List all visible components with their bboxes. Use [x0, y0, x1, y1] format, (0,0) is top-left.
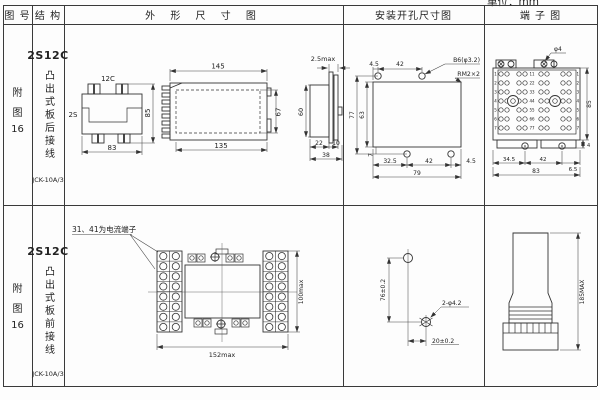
note-leaders — [72, 235, 158, 270]
svg-text:55: 55 — [529, 108, 535, 113]
dim-185max: 185MAX — [579, 280, 586, 305]
terminal-hole-label: φ4 — [554, 46, 562, 53]
svg-text:1: 1 — [494, 72, 497, 77]
silhouette-dims — [550, 233, 581, 350]
dim-135: 135 — [214, 142, 227, 150]
header-terminal: 端 子 图 — [484, 6, 597, 23]
row1-outline-drawing: 12C 2S 83 85 145 135 67 — [64, 24, 343, 205]
header-mounting: 安装开孔尺寸图 — [343, 6, 484, 23]
holes-spec-label: 2-φ4.2 — [442, 300, 462, 307]
row2-structure-type: 凸出式板前接线 — [32, 266, 64, 366]
svg-text:6: 6 — [577, 117, 580, 122]
header-structure: 结 构 — [32, 6, 64, 23]
row1-structure-type: 凸出式板后接线 — [32, 70, 64, 170]
row2-outline-drawing: 31、41为电流端子 — [64, 205, 343, 386]
dim-34-5: 34.5 — [503, 157, 516, 163]
dim-4-terminal: 4 — [587, 143, 590, 149]
structure-type-text: 凸出式板前接线 — [41, 266, 56, 366]
svg-text:33: 33 — [529, 90, 535, 95]
dim-145: 145 — [211, 63, 224, 71]
grid-line — [3, 386, 597, 387]
dim-20: 20±0.2 — [432, 338, 454, 345]
dim-4-5-top: 4.5 — [369, 61, 379, 68]
dim-85: 85 — [144, 109, 152, 118]
dim-76: 76±0.2 — [380, 279, 387, 301]
dim-85-terminal: 85 — [586, 100, 593, 108]
dim-83: 83 — [108, 144, 117, 152]
thread-spec-label: RM2×2 — [457, 71, 480, 78]
figure-line: 图 — [13, 104, 23, 119]
row1-model: 2S12C — [32, 49, 64, 62]
relay-silhouette — [503, 233, 558, 350]
top-view-dims — [82, 84, 155, 155]
figure-line: 附 — [13, 280, 23, 295]
svg-text:5: 5 — [577, 108, 580, 113]
center-body — [185, 249, 260, 334]
figure-line: 附 — [13, 84, 23, 99]
dim-42-top: 42 — [396, 61, 404, 68]
row2-figure-number: 附 图 16 — [3, 280, 32, 331]
dim-83-terminal: 83 — [532, 168, 540, 175]
svg-text:6: 6 — [494, 117, 497, 122]
catalog-page: 单位：mm 图 号 结 构 外 形 尺 寸 图 安装开孔尺寸图 端 子 图 附 … — [0, 0, 600, 400]
terminal-dot — [524, 145, 526, 147]
row2-product-code: JCK-10A/3 — [32, 370, 64, 378]
row1-mounting-drawing: 4.5 42 B6(φ3.2) RM2×2 77 63 7 32.5 42 4.… — [343, 24, 484, 205]
structure-type-text: 凸出式板后接线 — [41, 70, 56, 170]
dim-4-5-bottom: 4.5 — [466, 158, 476, 165]
svg-text:4: 4 — [577, 99, 580, 104]
svg-text:44: 44 — [529, 99, 535, 104]
top-view — [82, 84, 142, 143]
terminal-grid: 1111222233334444555566667777 — [494, 72, 579, 131]
dim-38: 38 — [322, 152, 330, 159]
dim-22: 22 — [315, 140, 323, 147]
dim-7: 7 — [368, 153, 375, 157]
dim-60: 60 — [297, 108, 305, 116]
terminal-dot — [561, 145, 563, 147]
svg-text:66: 66 — [529, 117, 535, 122]
svg-text:1: 1 — [577, 72, 580, 77]
row2-model: 2S12C — [32, 245, 64, 258]
svg-text:5: 5 — [494, 108, 497, 113]
header-outline: 外 形 尺 寸 图 — [64, 6, 343, 23]
dim-42-bottom: 42 — [425, 158, 433, 165]
figure-line: 16 — [11, 320, 24, 331]
dim-12c: 12C — [101, 75, 115, 83]
figure-line: 图 — [13, 300, 23, 315]
dim-79: 79 — [413, 170, 421, 177]
row1-product-code: JCK-10A/3 — [32, 176, 64, 184]
svg-text:3: 3 — [494, 90, 497, 95]
figure-line: 16 — [11, 124, 24, 135]
svg-text:7: 7 — [577, 126, 580, 131]
svg-text:7: 7 — [494, 126, 497, 131]
dim-42-terminal: 42 — [540, 157, 547, 163]
side-view — [162, 83, 271, 140]
dim-6-5: 6.5 — [569, 167, 578, 173]
grid-line — [597, 5, 598, 386]
current-terminal-note: 31、41为电流端子 — [72, 224, 137, 234]
mounting-panel — [373, 73, 461, 157]
row1-figure-number: 附 图 16 — [3, 84, 32, 135]
row2-terminal-drawing: 185MAX — [484, 205, 597, 386]
center-lines — [148, 243, 297, 342]
svg-text:3: 3 — [577, 90, 580, 95]
svg-text:2: 2 — [577, 81, 580, 86]
dim-152max: 152max — [209, 351, 236, 359]
dim-10: 10 — [332, 140, 340, 147]
dim-63: 63 — [359, 111, 366, 119]
dim-2-5max: 2.5max — [311, 55, 336, 63]
mounting-dims2 — [387, 249, 469, 346]
dim-32-5: 32.5 — [383, 158, 397, 165]
row1-terminal-drawing: 1111222233334444555566667777 φ4 34.5 42 … — [484, 24, 597, 205]
dim-77: 77 — [349, 111, 356, 119]
svg-text:2: 2 — [494, 81, 497, 86]
row2-mounting-drawing: 76±0.2 20±0.2 2-φ4.2 — [343, 205, 484, 386]
dim-67: 67 — [275, 108, 283, 117]
svg-text:11: 11 — [529, 72, 535, 77]
svg-text:4: 4 — [494, 99, 497, 104]
dim-2s: 2S — [69, 111, 78, 119]
svg-text:77: 77 — [529, 126, 535, 131]
dim-100max: 100max — [298, 279, 305, 304]
svg-text:22: 22 — [529, 81, 535, 86]
header-fig-no: 图 号 — [3, 6, 32, 23]
hole-spec-label: B6(φ3.2) — [453, 57, 480, 64]
end-view — [310, 72, 342, 143]
